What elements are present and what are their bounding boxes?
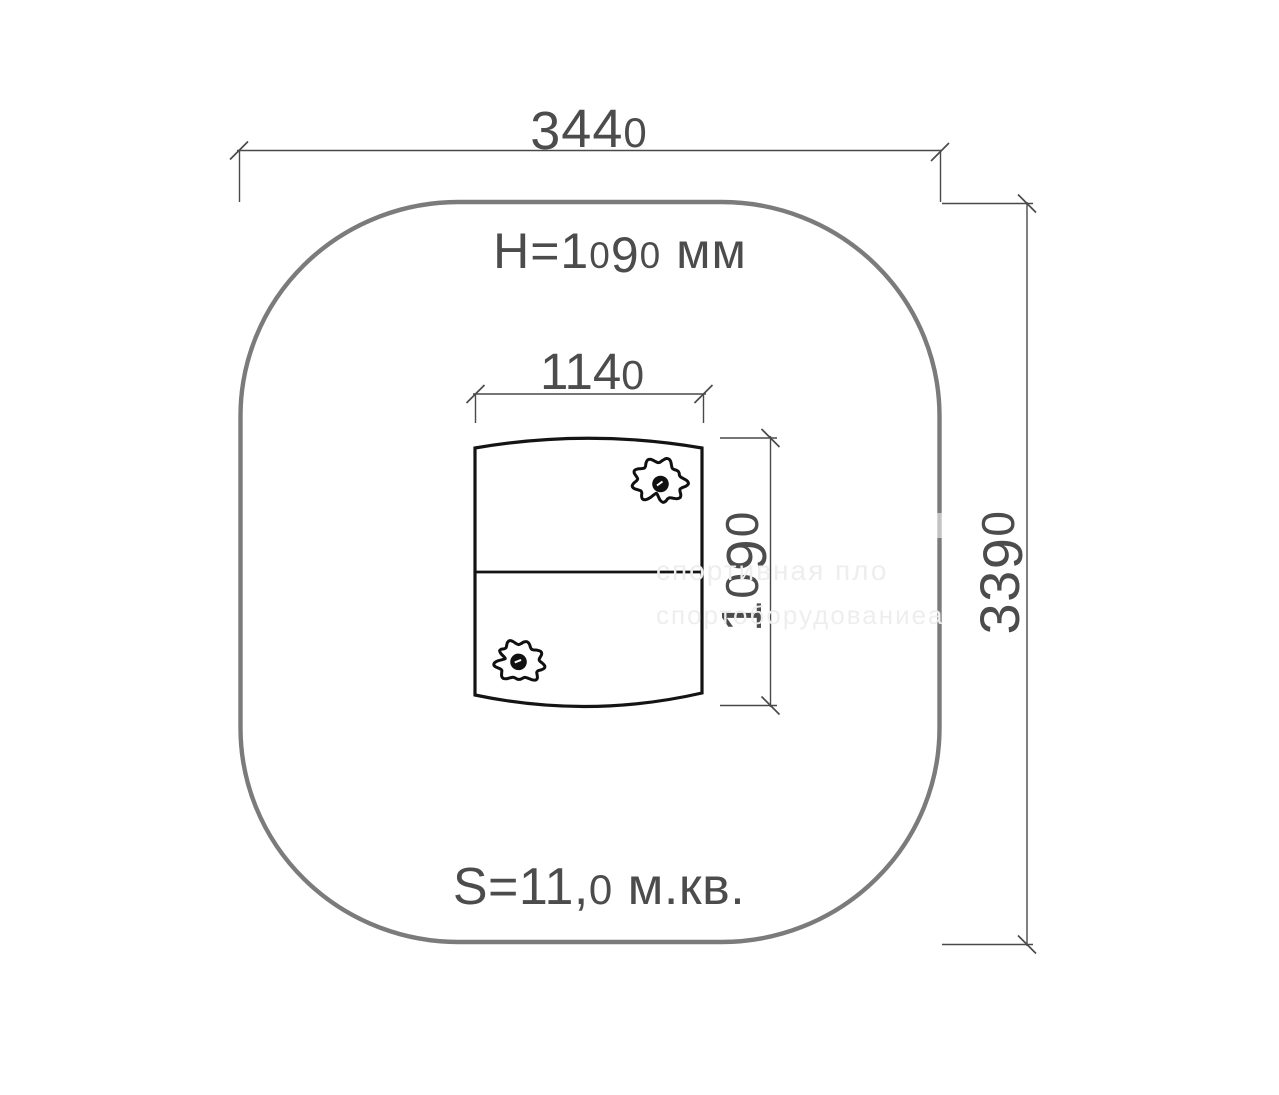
svg-text:1140: 1140 [540, 343, 644, 400]
svg-text:H=1090 мм: H=1090 мм [493, 223, 747, 283]
svg-text:3390: 3390 [968, 509, 1034, 634]
svg-text:спортивная пло: спортивная пло [656, 555, 888, 586]
svg-text:а: а [928, 600, 943, 630]
svg-text:спортоборудование: спортоборудование [656, 600, 928, 630]
svg-text:S=11,0 м.кв.: S=11,0 м.кв. [453, 858, 745, 916]
svg-text:3440: 3440 [530, 99, 647, 161]
